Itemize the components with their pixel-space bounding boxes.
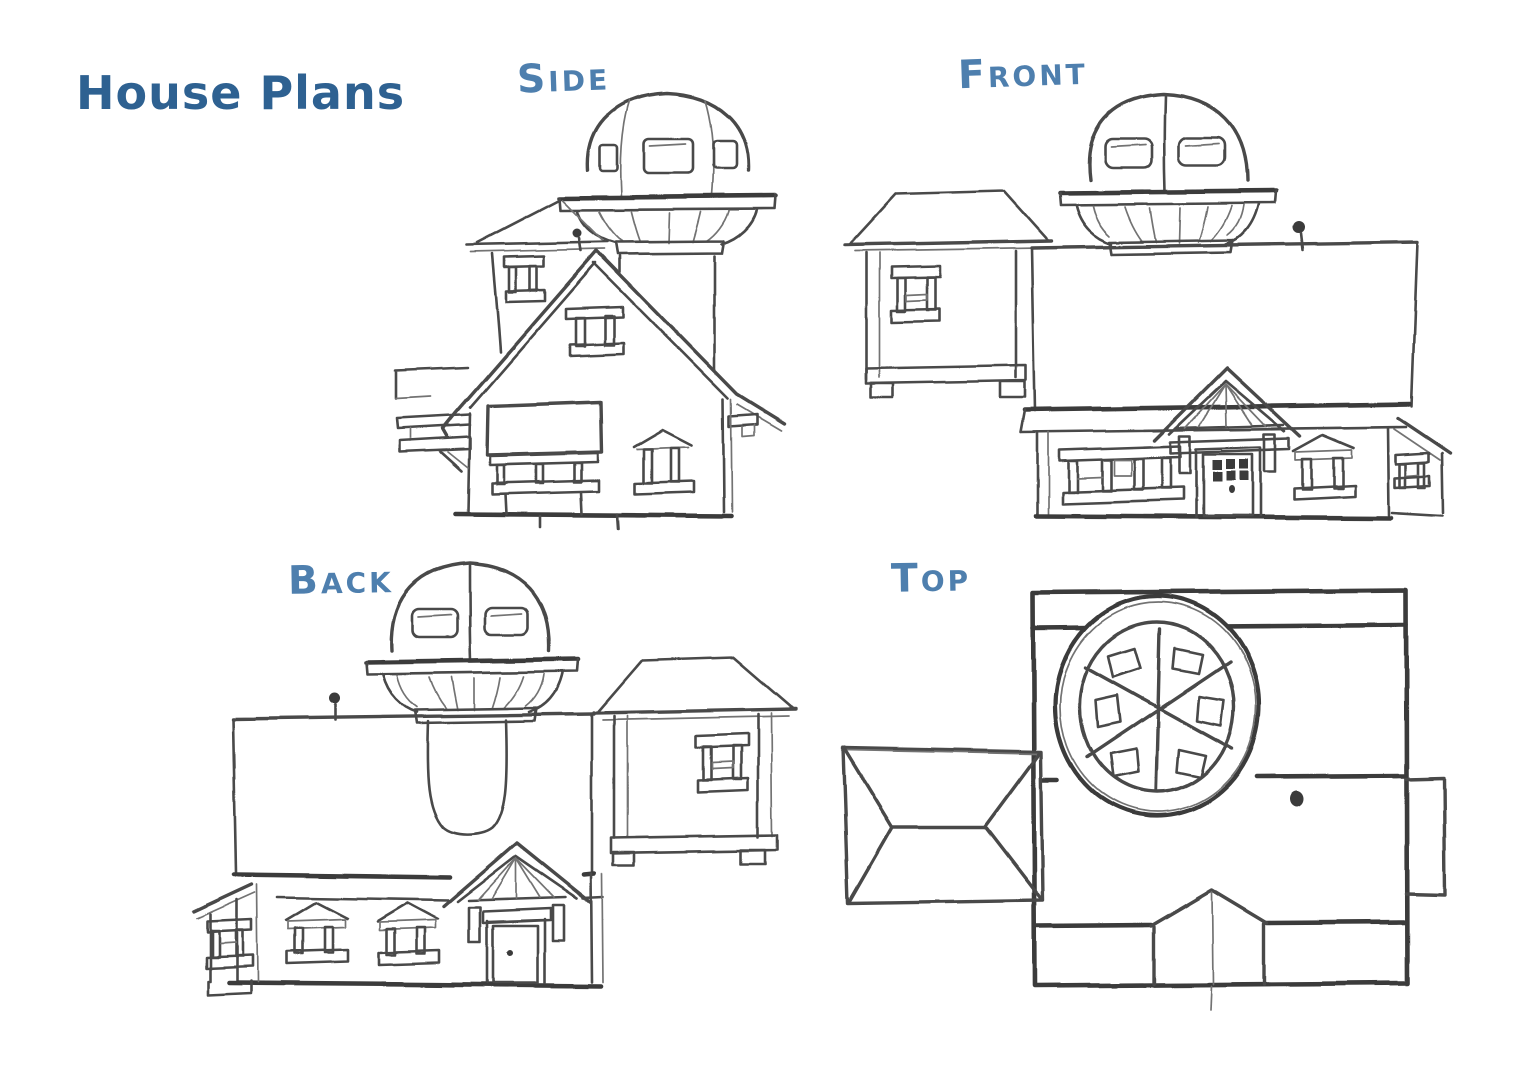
- top-view-sketch: [843, 590, 1445, 1010]
- back-view-sketch: [194, 563, 795, 995]
- house-plans-sheet: House Plans SIDE FRONT BACK TOP: [0, 0, 1533, 1080]
- front-view-sketch: [845, 94, 1450, 518]
- side-view-sketch: [395, 93, 784, 529]
- house-plans-drawing: [0, 0, 1533, 1080]
